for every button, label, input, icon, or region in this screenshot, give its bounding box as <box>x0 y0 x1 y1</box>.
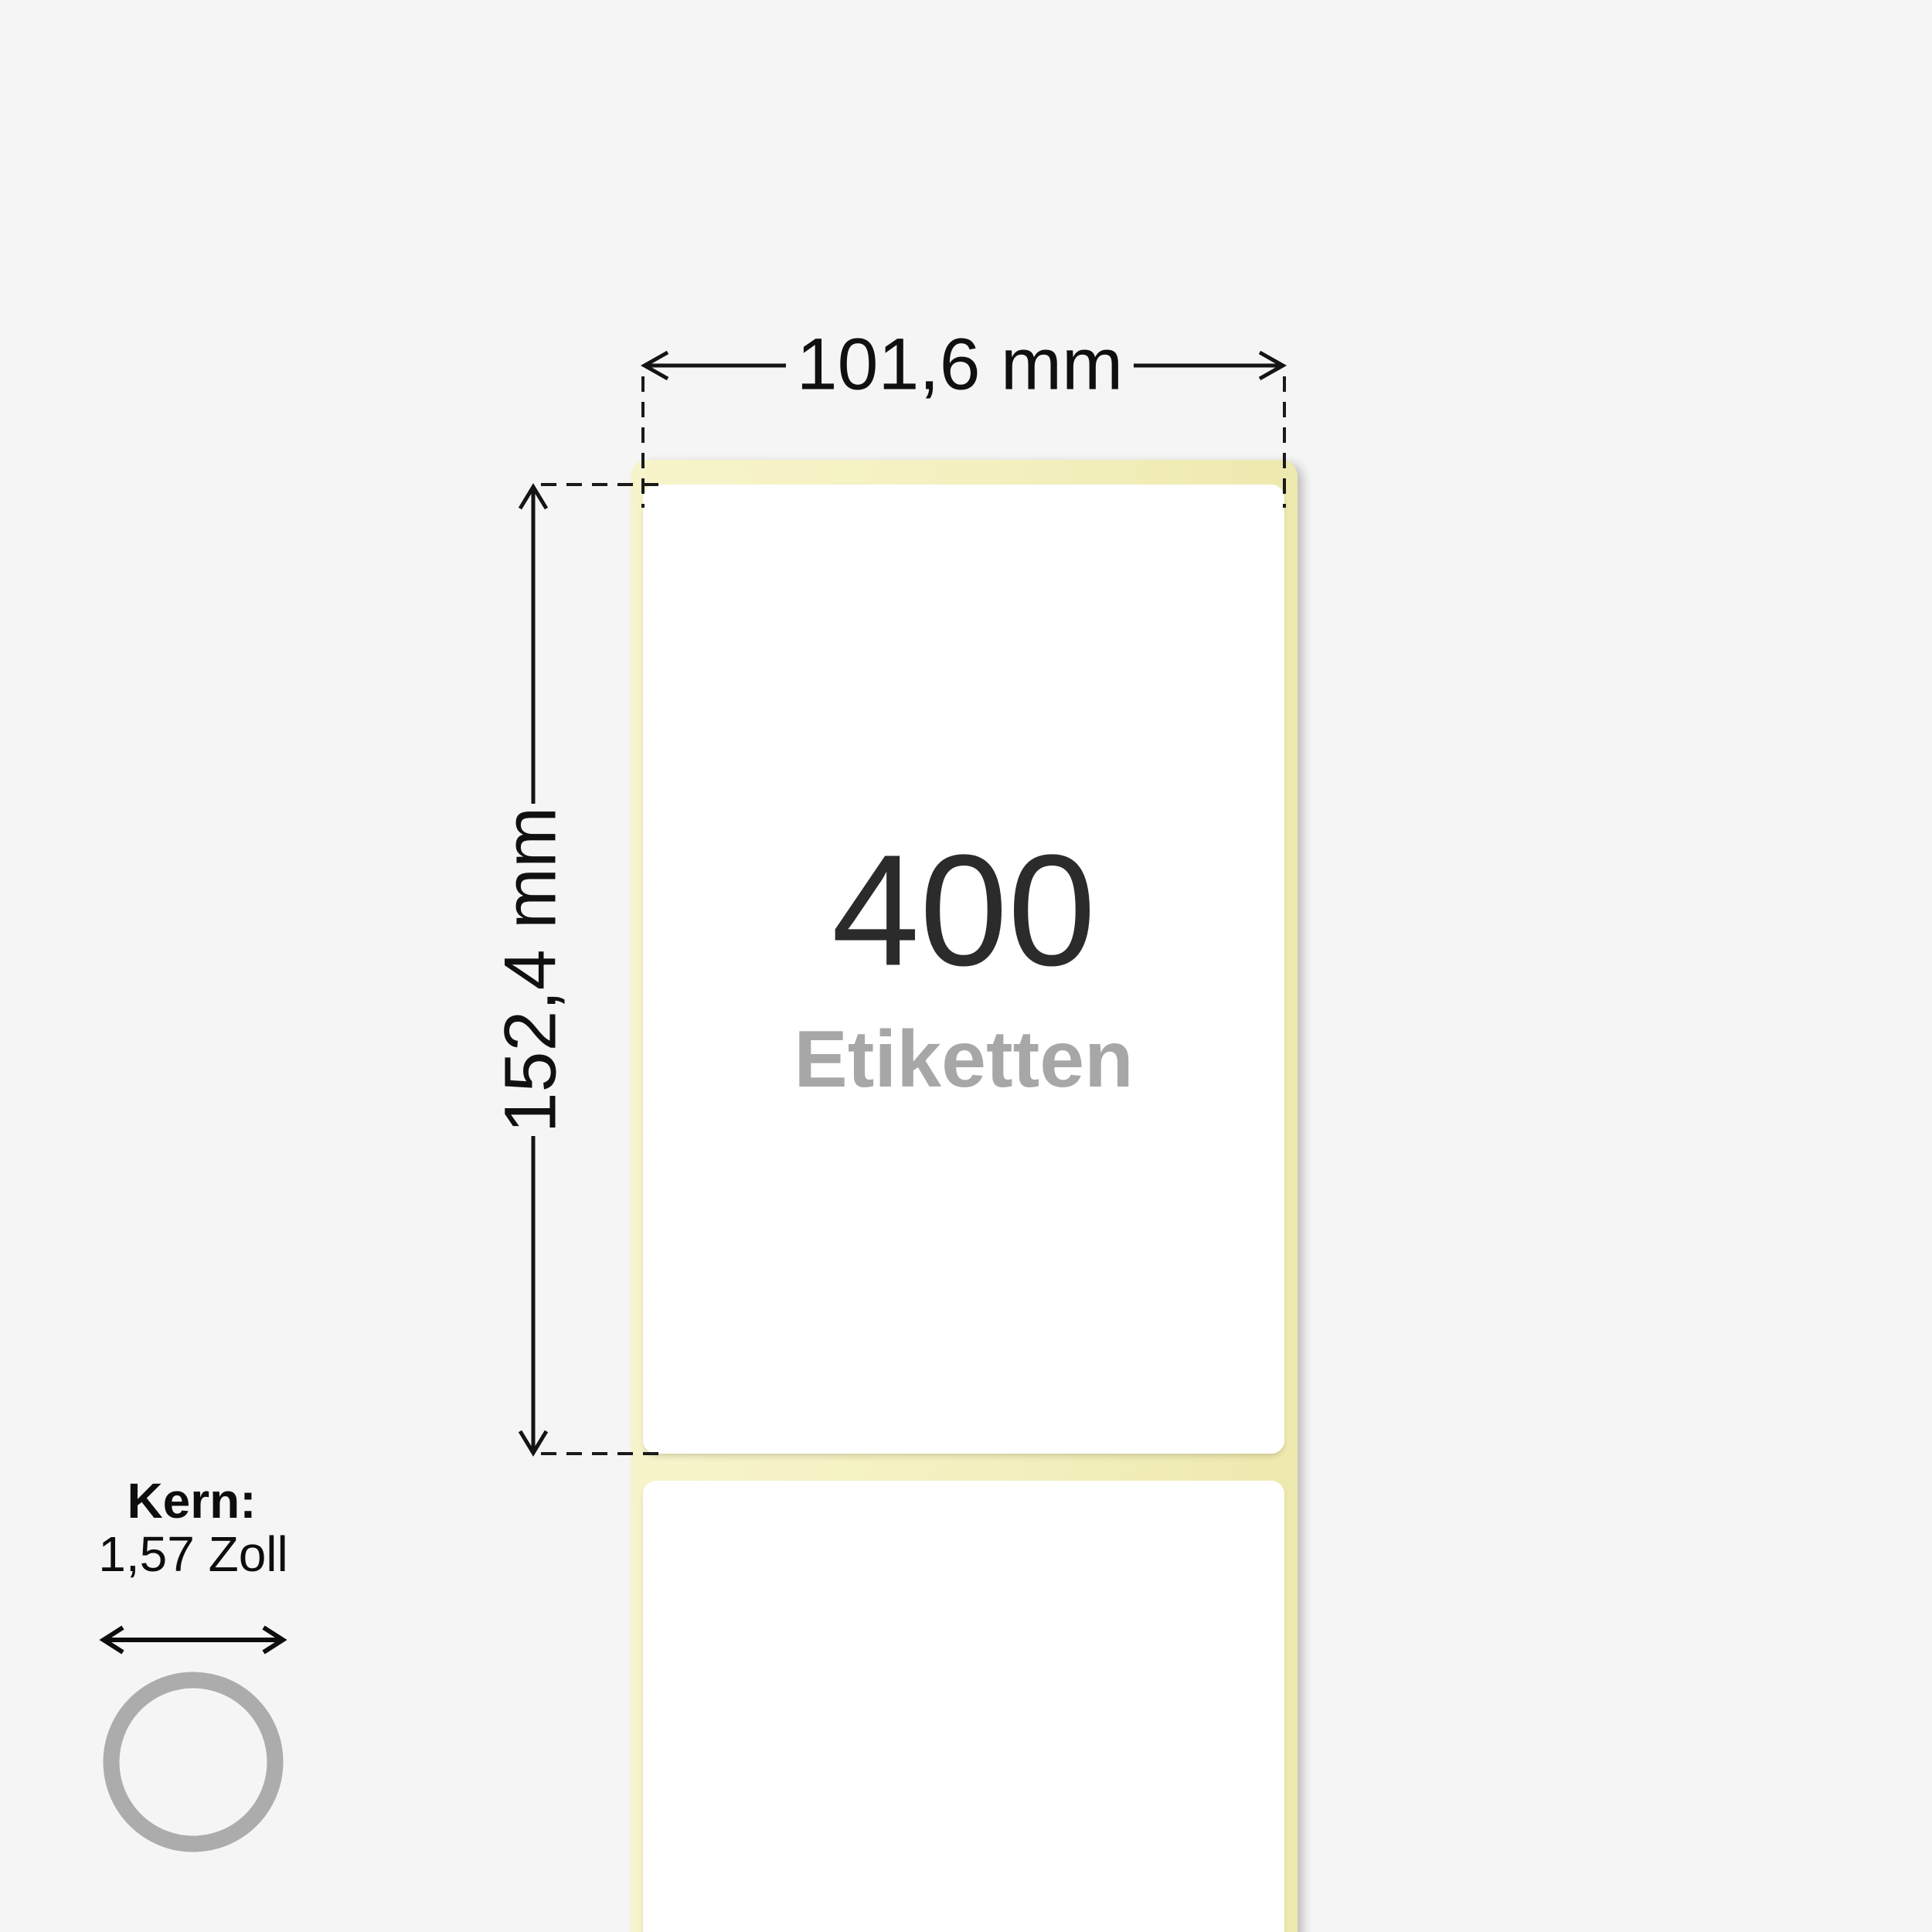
core-size-value: 1,57 Zoll <box>98 1529 287 1579</box>
label-next <box>643 1481 1284 1932</box>
arrowhead-up-icon <box>520 487 546 509</box>
core-diameter-arrow <box>104 1628 283 1652</box>
core-title: Kern: <box>127 1476 256 1526</box>
label-front: 400 Etiketten <box>643 485 1284 1454</box>
arrowhead-right-icon <box>264 1628 283 1652</box>
arrowhead-right-icon <box>1260 352 1283 379</box>
label-roll-illustration: 400 Etiketten <box>0 0 1932 1932</box>
arrowhead-left-icon <box>645 352 668 379</box>
width-dimension-value: 101,6 mm <box>797 328 1123 402</box>
label-count-caption: Etiketten <box>794 1019 1133 1100</box>
core-ring-icon <box>111 1680 275 1844</box>
height-dimension-value: 152,4 mm <box>495 807 568 1133</box>
label-count: 400 <box>832 832 1096 990</box>
liner-backing: 400 Etiketten <box>631 460 1298 1932</box>
arrowhead-down-icon <box>520 1431 546 1453</box>
arrowhead-left-icon <box>104 1628 123 1652</box>
